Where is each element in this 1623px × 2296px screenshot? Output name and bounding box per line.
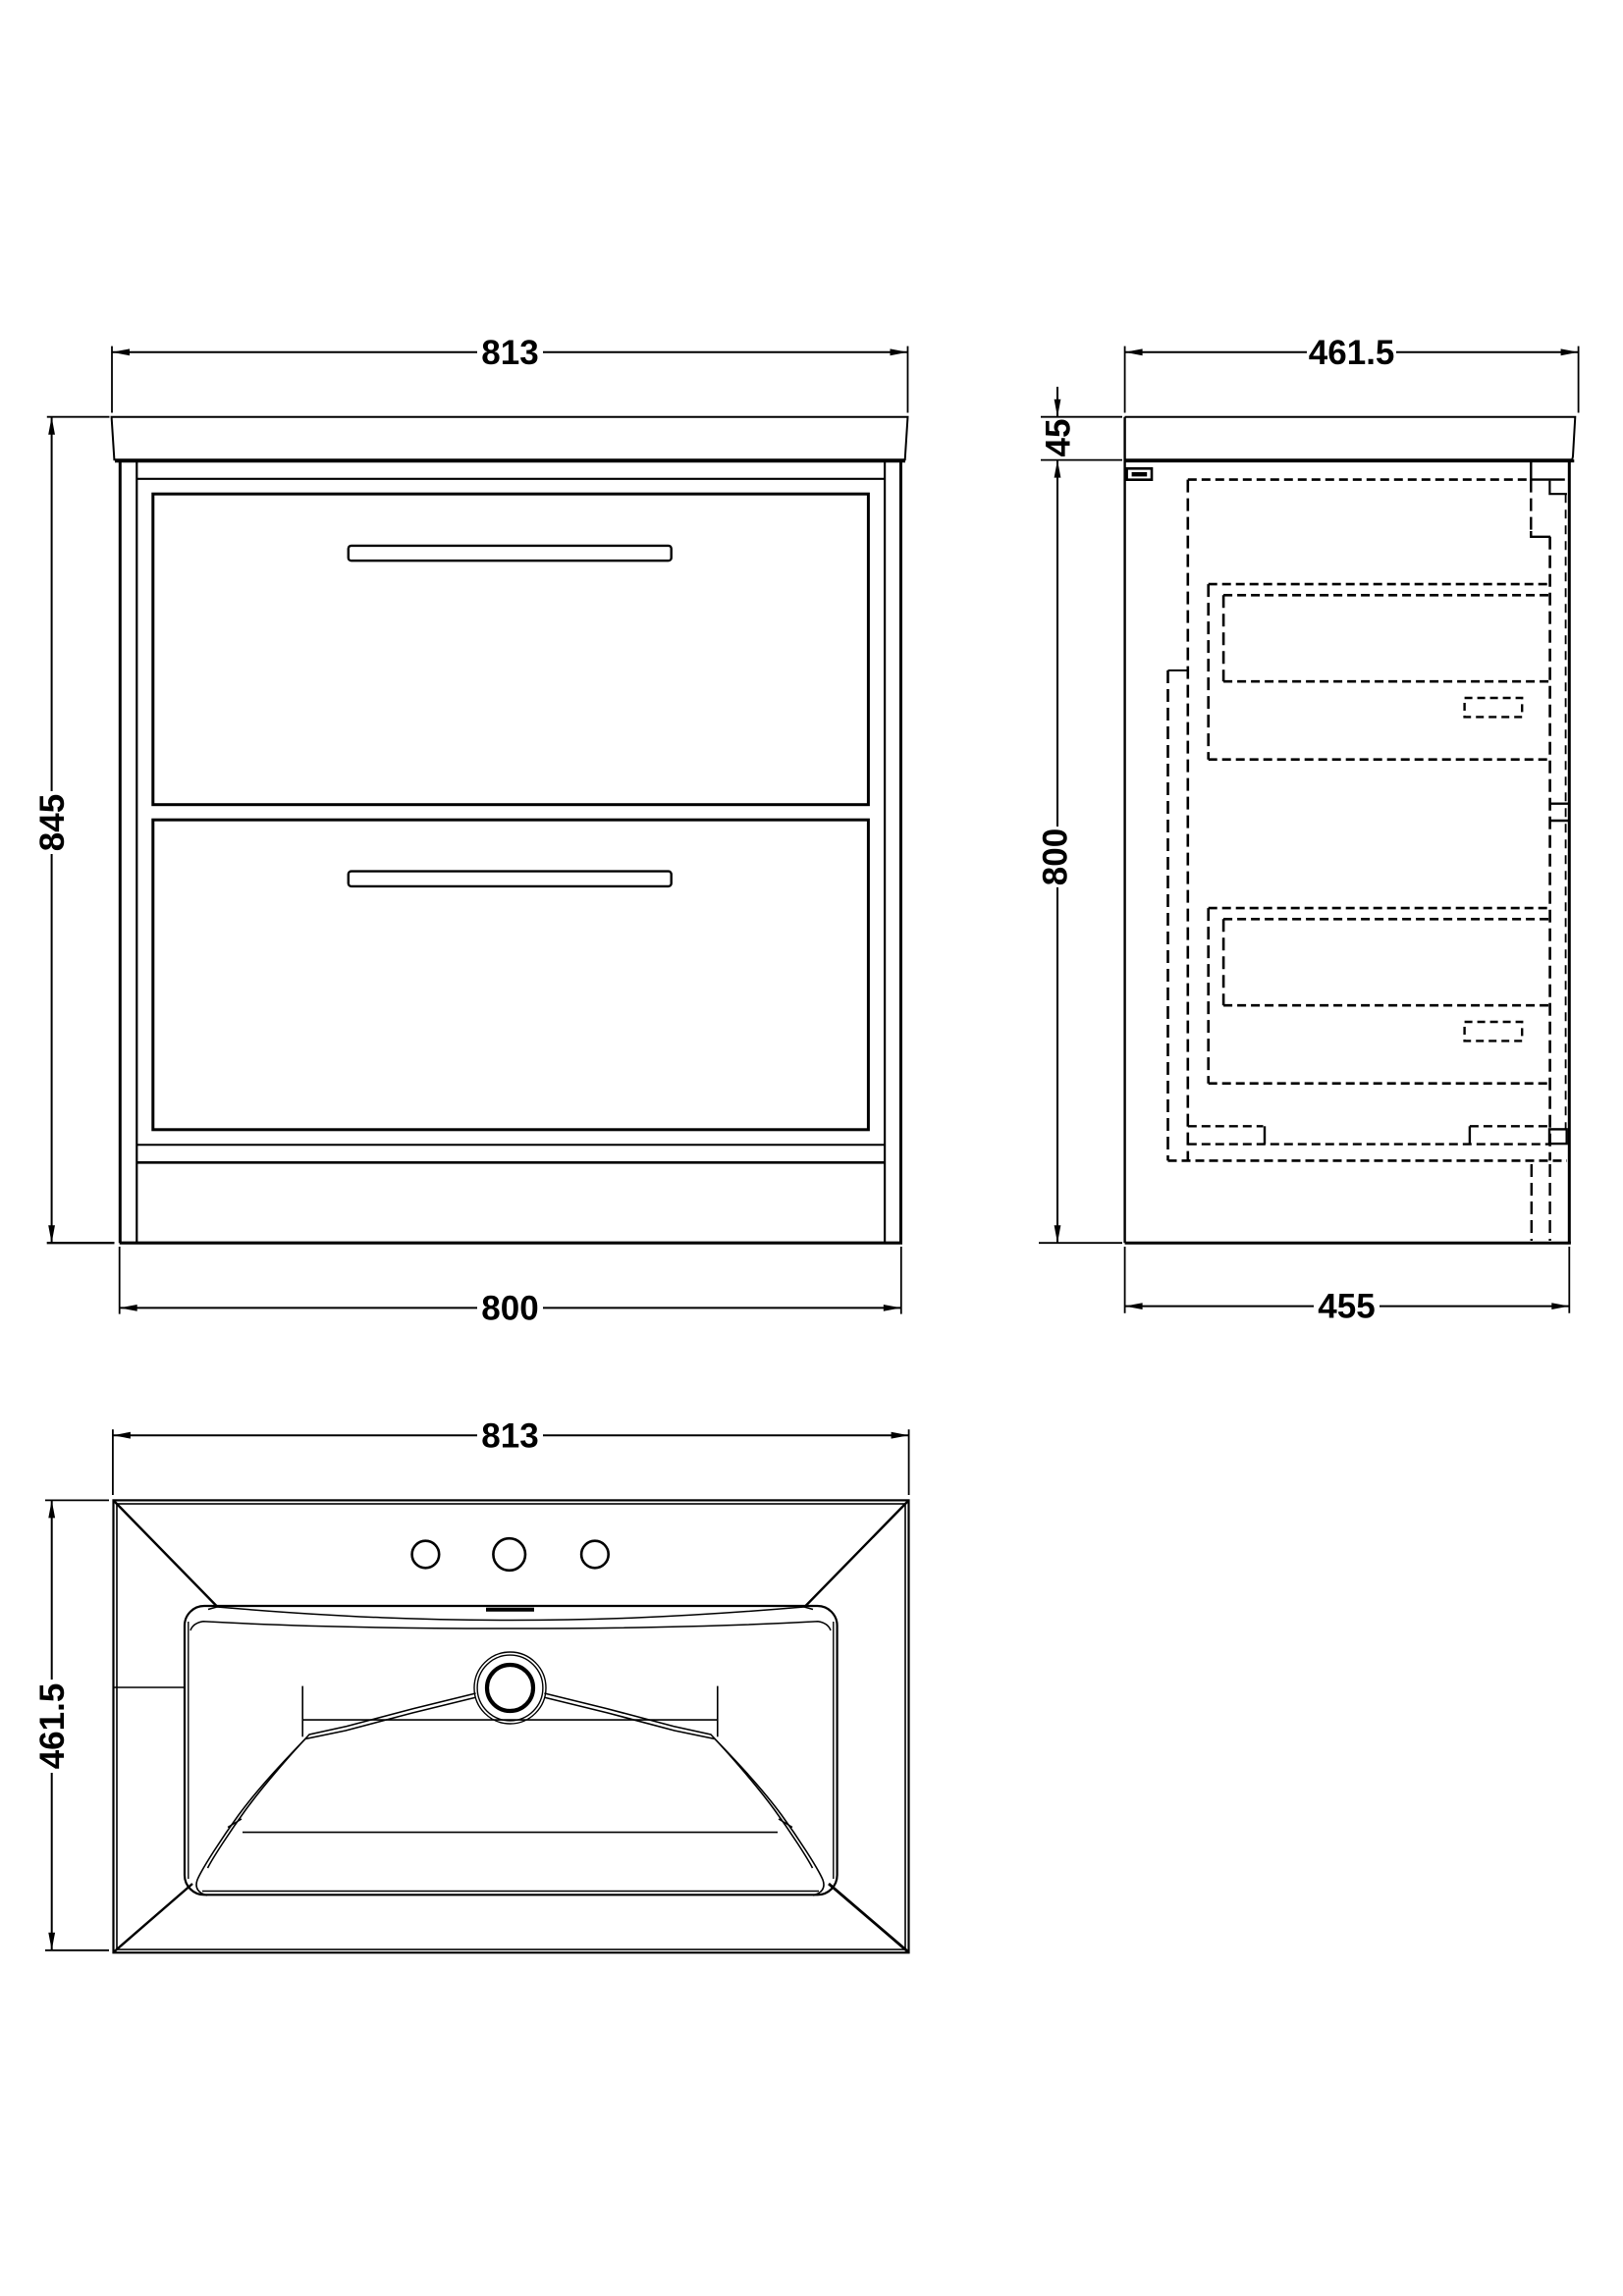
svg-text:461.5: 461.5 (33, 1683, 72, 1770)
svg-text:845: 845 (33, 794, 72, 851)
svg-text:813: 813 (481, 334, 538, 372)
svg-text:813: 813 (481, 1416, 538, 1455)
svg-text:45: 45 (1040, 419, 1078, 457)
svg-text:455: 455 (1318, 1288, 1375, 1326)
svg-text:800: 800 (481, 1290, 538, 1328)
svg-text:461.5: 461.5 (1309, 334, 1395, 372)
svg-text:800: 800 (1037, 828, 1075, 885)
